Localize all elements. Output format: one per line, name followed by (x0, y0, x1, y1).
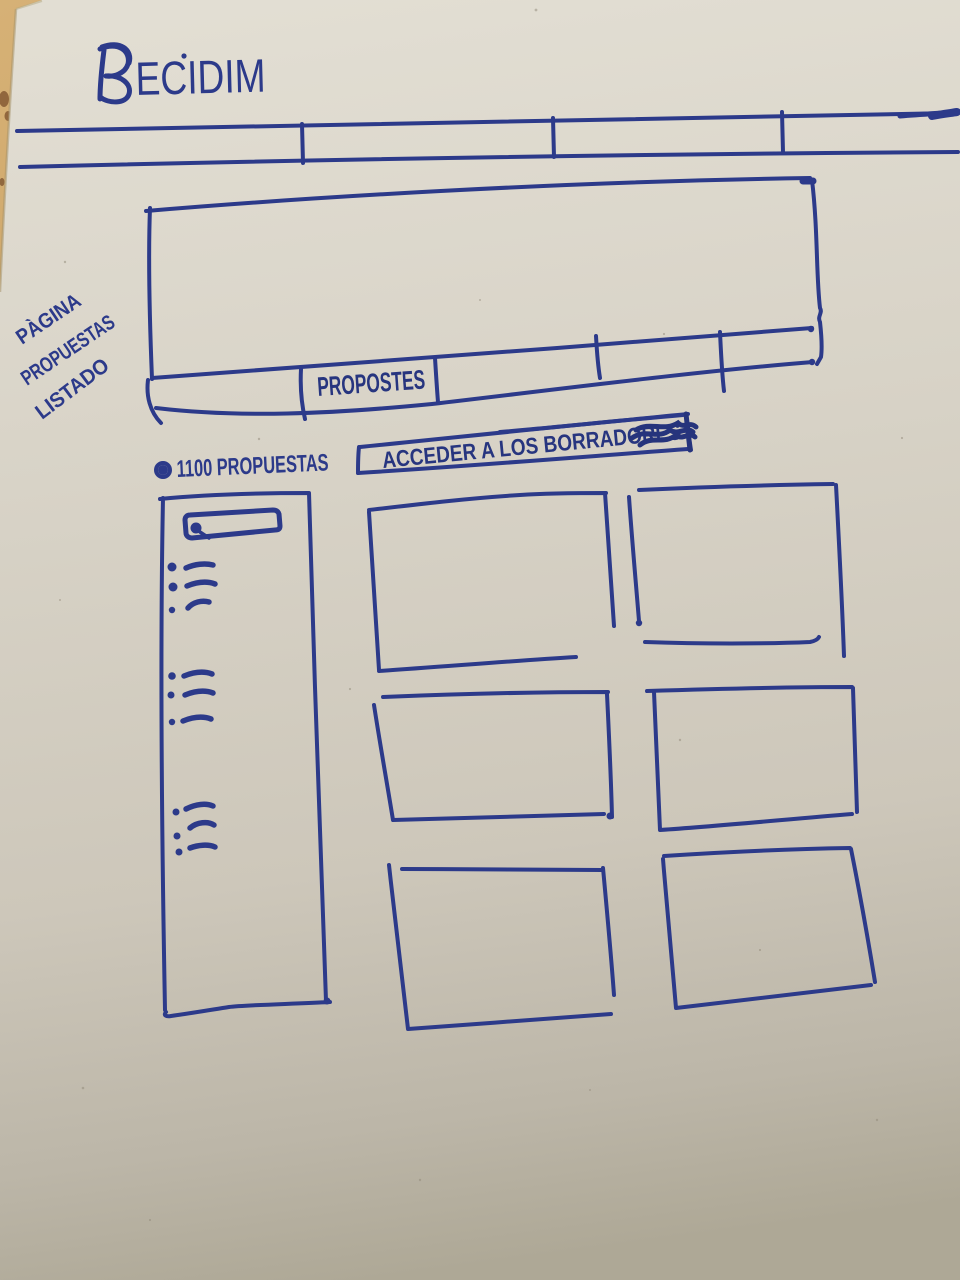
svg-text:ECIDIM: ECIDIM (135, 49, 266, 105)
